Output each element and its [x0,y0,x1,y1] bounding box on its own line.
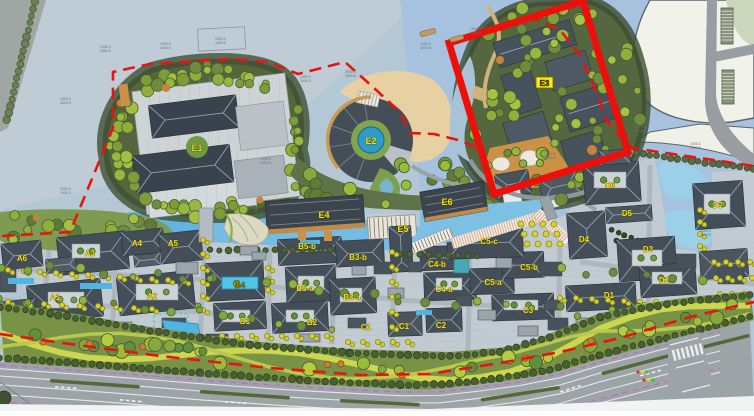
svg-text:D3: D3 [643,245,654,254]
svg-text:D6: D6 [605,181,616,190]
svg-text:E5: E5 [397,224,408,234]
svg-text:C4-b: C4-b [428,260,446,269]
svg-text:1600.5: 1600.5 [100,49,111,53]
svg-text:1600.5: 1600.5 [690,146,701,150]
svg-text:A5: A5 [168,239,179,248]
svg-text:A2: A2 [147,292,158,301]
svg-text:D2: D2 [659,276,670,285]
svg-text:1600.5: 1600.5 [420,46,431,50]
svg-text:E6: E6 [441,197,452,207]
svg-text:1600.5: 1600.5 [260,161,271,165]
svg-text:E3: E3 [540,79,550,88]
svg-text:A1: A1 [50,293,61,302]
svg-text:C5-c: C5-c [480,237,498,246]
svg-text:D1: D1 [604,291,615,300]
svg-text:B4: B4 [235,281,246,290]
svg-text:A3: A3 [85,249,96,258]
svg-text:1600.5: 1600.5 [60,191,71,195]
svg-text:A4: A4 [132,239,143,248]
svg-text:B5-a: B5-a [296,284,314,293]
svg-text:C1: C1 [361,323,372,332]
svg-text:B3-b: B3-b [349,253,367,262]
svg-text:1600.5: 1600.5 [60,101,71,105]
svg-text:B2: B2 [307,318,318,327]
svg-text:1600.5: 1600.5 [300,79,311,83]
svg-text:A6: A6 [17,254,28,263]
svg-text:C5-b: C5-b [520,263,538,272]
svg-text:1600.5: 1600.5 [545,156,556,160]
svg-text:C3: C3 [523,306,534,315]
svg-text:C1: C1 [399,322,410,331]
svg-text:E4: E4 [318,210,329,220]
svg-text:1600.5: 1600.5 [635,129,646,133]
svg-text:1600.5: 1600.5 [700,233,711,237]
svg-text:B1: B1 [240,317,251,326]
svg-text:1600.5: 1600.5 [215,41,226,45]
svg-text:B5-b: B5-b [298,242,316,251]
svg-text:B3-a: B3-a [343,293,361,302]
svg-text:1600.5: 1600.5 [160,46,171,50]
svg-text:D7: D7 [713,201,724,210]
svg-text:D5: D5 [622,209,633,218]
svg-text:E2: E2 [365,136,376,146]
svg-text:C5-a: C5-a [484,278,502,287]
svg-text:1600.5: 1600.5 [345,74,356,78]
svg-text:1600.5: 1600.5 [470,31,481,35]
svg-text:C4-a: C4-a [435,285,453,294]
svg-text:E1: E1 [191,143,202,153]
svg-text:D4: D4 [579,235,590,244]
svg-text:C2: C2 [436,321,447,330]
